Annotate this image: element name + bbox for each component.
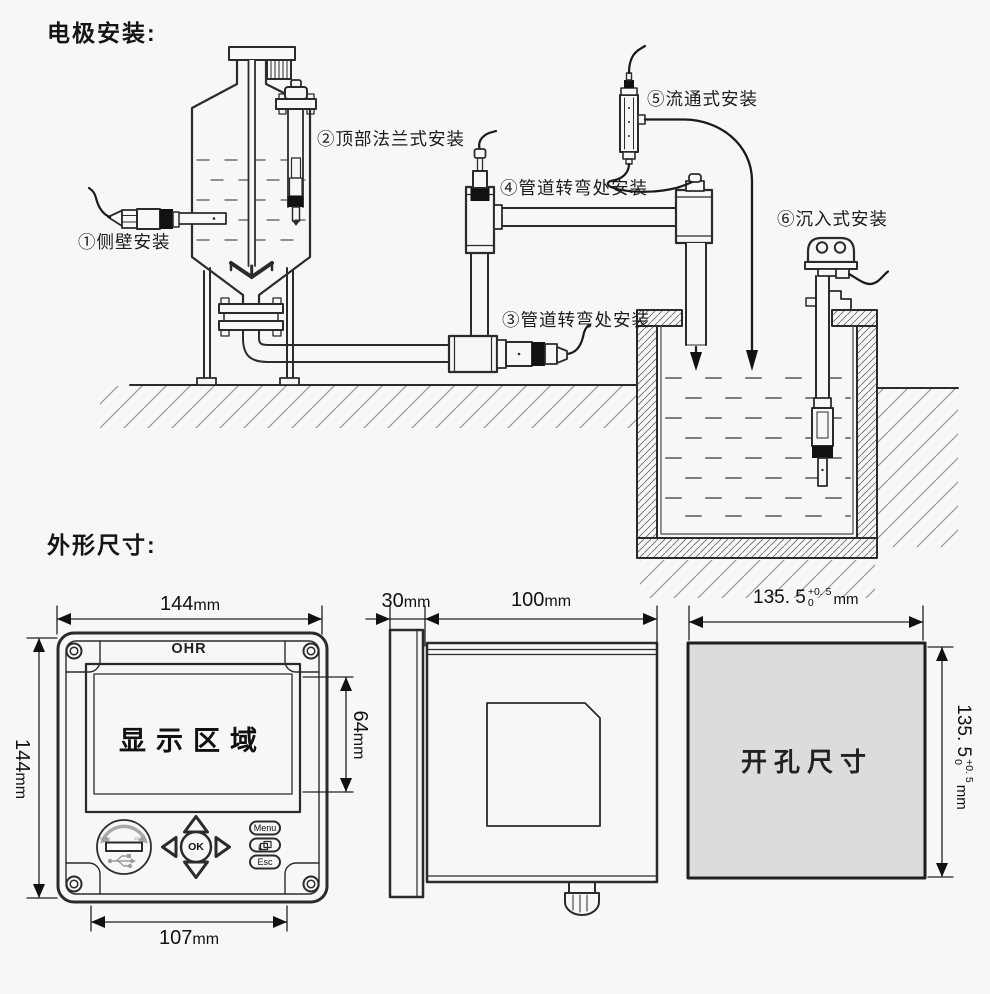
ok-key-label: OK <box>184 841 208 853</box>
dim-value: 144 <box>11 739 33 772</box>
down-arrow-icon <box>185 862 208 878</box>
esc-key-label: Esc <box>250 857 280 868</box>
tol-lower: 0 <box>808 598 832 609</box>
reactor-tank <box>89 47 316 385</box>
dim-bezel-depth-30: 30mm <box>366 590 446 614</box>
manual-page: 电极安装: ①侧壁安装 ②顶部法兰式安装 ③管道转弯处安装 ④管道转弯处安装 ⑤… <box>0 0 990 994</box>
tolerance-stack: +0. 50 <box>952 759 974 783</box>
sump-tank <box>637 310 877 558</box>
dim-height-144: 144mm <box>9 724 33 814</box>
dim-value: 100 <box>511 589 544 611</box>
dim-value: 144 <box>160 593 193 615</box>
dim-unit: mm <box>951 785 971 810</box>
label-flow-through-install: ⑤流通式安装 <box>647 86 758 111</box>
dim-width-144: 144mm <box>145 593 235 617</box>
tol-lower: 0 <box>952 759 963 783</box>
dim-value: 135. 5 <box>753 588 806 608</box>
left-arrow-icon <box>163 838 177 857</box>
dim-mount-width-107: 107mm <box>144 927 234 951</box>
dim-unit: mm <box>192 931 219 948</box>
electrode-side-wall <box>89 188 226 229</box>
dim-unit: mm <box>833 590 858 610</box>
dim-value: 64 <box>349 711 371 733</box>
electrode-pipe-tee-upper <box>471 149 490 201</box>
dim-cutout-width: 135. 5 +0. 50 mm <box>753 586 858 610</box>
usb-icon <box>108 854 136 868</box>
dimensions-section-title: 外形尺寸: <box>47 526 157 560</box>
tol-upper: +0. 5 <box>963 759 974 783</box>
electrode-pipe-tee-lower <box>497 340 567 368</box>
label-pipe-bend-install-upper: ④管道转弯处安装 <box>500 175 648 200</box>
menu-key-label: Menu <box>250 823 280 834</box>
up-arrow-icon <box>185 817 208 833</box>
dim-unit: mm <box>12 772 29 799</box>
usb-open-label: Open <box>95 836 115 841</box>
dim-unit: mm <box>544 593 571 610</box>
label-side-wall-install: ①侧壁安装 <box>78 229 171 254</box>
flow-cell <box>620 73 645 164</box>
agitator <box>231 60 272 277</box>
dim-display-height-64: 64mm <box>347 690 371 780</box>
usb-slot <box>106 843 142 852</box>
label-submersion-install: ⑥沉入式安装 <box>777 206 888 231</box>
display-area-label: 显示区域 <box>96 719 290 758</box>
right-arrow-icon <box>216 838 230 857</box>
dim-unit: mm <box>404 594 431 611</box>
dim-unit: mm <box>350 733 367 760</box>
side-view-drawing <box>366 606 657 915</box>
usb-cover <box>97 820 151 874</box>
dim-value: 107 <box>159 927 192 949</box>
installation-section-title: 电极安装: <box>47 14 157 48</box>
flow-arrow-pipe <box>690 352 702 371</box>
rating-plate <box>487 703 600 826</box>
dim-body-depth-100: 100mm <box>501 589 581 613</box>
cutout-label: 开孔尺寸 <box>712 742 902 779</box>
dim-unit: mm <box>193 597 220 614</box>
dim-cutout-height: 135. 5 +0. 50 mm <box>951 692 975 822</box>
dim-value: 135. 5 <box>953 704 973 757</box>
diagram-canvas <box>0 0 990 994</box>
dim-value: 30 <box>382 590 404 612</box>
cable-gland <box>565 882 599 915</box>
tolerance-stack: +0. 50 <box>808 587 832 609</box>
usb-close-label: Close <box>128 836 152 841</box>
label-pipe-bend-install-lower: ③管道转弯处安装 <box>502 307 650 332</box>
label-top-flange-install: ②顶部法兰式安装 <box>317 126 465 151</box>
flow-arrow-cable <box>746 350 758 371</box>
brand-logo: OHR <box>169 641 209 657</box>
